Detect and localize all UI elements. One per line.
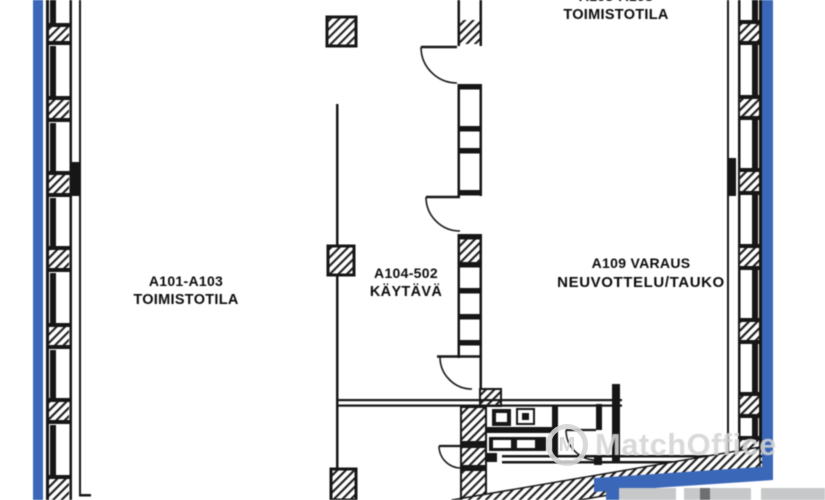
door-swing [439,446,461,468]
room-name: TOIMISTOTILA [133,291,238,310]
room-number: A101-A103 [133,272,238,291]
room-name: TOIMISTOTILA [563,6,668,25]
column-pillar [327,17,356,46]
office-corridor-wall [327,17,356,500]
room-label-top-office: A105-A108 TOIMISTOTILA [563,0,668,25]
room-label-left-office: A101-A103 TOIMISTOTILA [133,272,238,310]
right-wall-windows [752,0,758,436]
unit-outline-blue [33,0,773,500]
door-swing [437,357,482,390]
room-name: KÄYTÄVÄ [370,283,442,302]
column-pillar [331,469,356,500]
right-exterior-wall [727,0,762,455]
corridor-glazed-wall [421,0,501,406]
door-swing [426,197,460,231]
room-number: A109 VARAUS [557,254,725,273]
room-number: A104-502 [370,264,442,283]
door-swing [421,47,457,83]
wc-fixtures [486,409,546,462]
room-label-corridor: A104-502 KÄYTÄVÄ [370,264,442,302]
room-label-meeting-room: A109 VARAUS NEUVOTTELU/TAUKO [557,254,725,292]
column-pillar [328,246,354,275]
left-exterior-wall [46,0,91,500]
floor-plan-drawing [0,0,825,500]
floor-plan: A101-A103 TOIMISTOTILA A104-502 KÄYTÄVÄ … [0,0,825,500]
room-name: NEUVOTTELU/TAUKO [557,273,725,292]
